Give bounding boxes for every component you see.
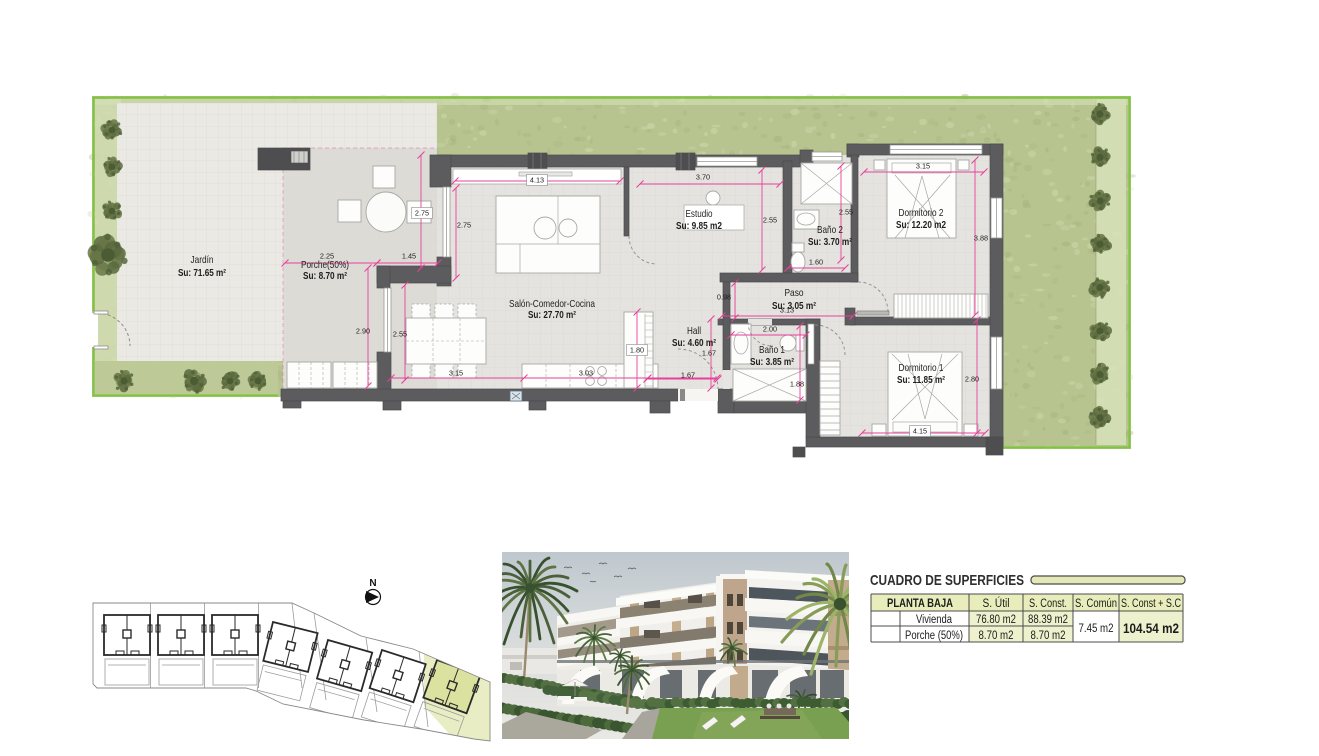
svg-text:Su: 3.70 m²: Su: 3.70 m² (808, 236, 852, 248)
svg-text:2.55: 2.55 (839, 208, 853, 217)
svg-text:Su: 11.85 m²: Su: 11.85 m² (897, 374, 945, 386)
svg-text:0.98: 0.98 (717, 293, 731, 302)
svg-text:Su: 3.05 m²: Su: 3.05 m² (772, 300, 816, 312)
svg-text:Su: 4.60 m²: Su: 4.60 m² (672, 337, 716, 349)
svg-text:CUADRO DE SUPERFICIES: CUADRO DE SUPERFICIES (870, 572, 1024, 589)
svg-text:1.60: 1.60 (809, 258, 823, 267)
svg-text:Su: 71.65 m²: Su: 71.65 m² (178, 267, 226, 279)
svg-text:4.15: 4.15 (913, 427, 927, 436)
svg-text:3.88: 3.88 (974, 234, 988, 243)
svg-text:Baño 1: Baño 1 (759, 344, 785, 356)
svg-text:1.67: 1.67 (702, 349, 716, 358)
svg-text:104.54 m2: 104.54 m2 (1123, 621, 1179, 636)
svg-text:Hall: Hall (687, 325, 701, 337)
svg-text:S. Const + S.C: S. Const + S.C (1121, 598, 1181, 610)
svg-text:PLANTA BAJA: PLANTA BAJA (887, 596, 953, 610)
svg-text:S. Útil: S. Útil (983, 597, 1010, 610)
svg-text:Su: 27.70 m²: Su: 27.70 m² (528, 309, 576, 321)
svg-text:8.70 m2: 8.70 m2 (979, 630, 1014, 642)
svg-text:2.90: 2.90 (356, 327, 370, 336)
svg-text:Paso: Paso (785, 287, 804, 299)
svg-text:76.80 m2: 76.80 m2 (976, 614, 1016, 626)
svg-text:3.15: 3.15 (916, 162, 930, 171)
svg-text:Su: 8.70 m²: Su: 8.70 m² (303, 270, 347, 282)
svg-text:Su: 12.20 m2: Su: 12.20 m2 (896, 219, 946, 231)
svg-text:Dormitorio 2: Dormitorio 2 (899, 207, 944, 219)
svg-text:Jardín: Jardín (191, 254, 214, 266)
svg-text:Estudio: Estudio (686, 208, 713, 220)
svg-text:Dormitorio 1: Dormitorio 1 (899, 362, 944, 374)
svg-text:88.39 m2: 88.39 m2 (1028, 614, 1068, 626)
svg-text:1.45: 1.45 (402, 252, 416, 261)
svg-text:N: N (369, 578, 376, 589)
svg-text:Su: 9.85 m2: Su: 9.85 m2 (676, 220, 722, 232)
svg-text:3.15: 3.15 (449, 369, 463, 378)
svg-text:3.70: 3.70 (696, 173, 710, 182)
svg-text:Su: 3.85 m²: Su: 3.85 m² (750, 356, 794, 368)
svg-text:S. Const.: S. Const. (1029, 598, 1067, 610)
svg-text:2.80: 2.80 (965, 375, 979, 384)
svg-text:4.13: 4.13 (530, 176, 544, 185)
svg-text:2.55: 2.55 (763, 216, 777, 225)
svg-text:Baño 2: Baño 2 (817, 224, 843, 236)
svg-text:2.00: 2.00 (763, 325, 777, 334)
svg-text:1.80: 1.80 (630, 346, 644, 355)
svg-text:3.03: 3.03 (579, 369, 593, 378)
svg-text:2.55: 2.55 (393, 330, 407, 339)
svg-text:2.75: 2.75 (457, 221, 471, 230)
svg-text:2.75: 2.75 (415, 209, 429, 218)
svg-text:Vivienda: Vivienda (916, 614, 952, 626)
svg-text:S. Común: S. Común (1075, 598, 1117, 610)
svg-text:1.88: 1.88 (790, 380, 804, 389)
svg-text:Porche (50%): Porche (50%) (905, 630, 963, 642)
svg-text:7.45 m2: 7.45 m2 (1079, 623, 1114, 635)
svg-text:8.70 m2: 8.70 m2 (1031, 630, 1066, 642)
